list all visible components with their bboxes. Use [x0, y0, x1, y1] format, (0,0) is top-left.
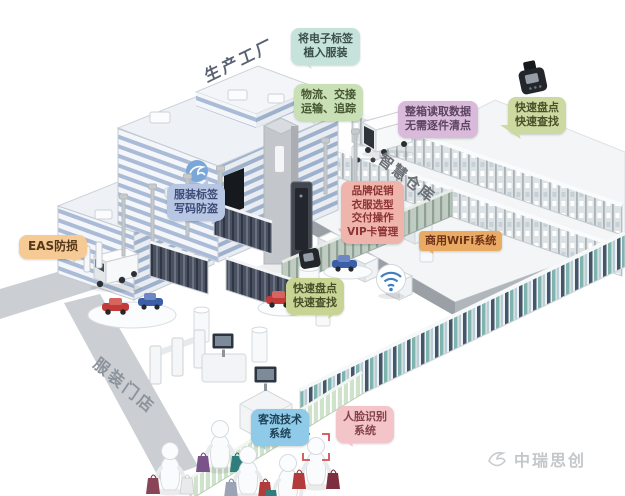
- callout-garment-tag: 服装标签 写码防盗: [167, 184, 225, 221]
- callout-brand-promo: 品牌促销 衣服选型 交付操作 VIP卡管理: [341, 181, 404, 244]
- traffic-counter-monitor: [254, 366, 277, 383]
- smart-retail-illustration: 生产工厂 智慧仓库 服装门店 将电子标签 植入服装 物流、交接 运输、追踪 整箱…: [0, 0, 625, 496]
- callout-quick-count-store: 快速盘点 快速查找: [286, 278, 344, 315]
- callout-logistics: 物流、交接 运输、追踪: [294, 84, 363, 121]
- brand-logo-text: 中瑞思创: [514, 447, 586, 471]
- warehouse-handheld-reader: [516, 59, 548, 96]
- callout-customer-flow: 客流技术 系统: [251, 409, 309, 446]
- callout-quick-count-warehouse: 快速盘点 快速查找: [508, 97, 566, 134]
- callout-tag-implant: 将电子标签 植入服装: [291, 28, 360, 65]
- brand-logo: 中瑞思创: [485, 447, 586, 471]
- callout-eas: EAS防损: [19, 235, 87, 259]
- callout-face-recognition: 人脸识别 系统: [336, 406, 394, 443]
- bird-logo-icon: [485, 447, 509, 471]
- shopper: [196, 421, 244, 474]
- callout-box-read: 整箱读取数据 无需逐件清点: [398, 101, 478, 138]
- checkout-monitor: [212, 333, 234, 349]
- callout-commercial-wifi: 商用WiFi系统: [419, 231, 502, 251]
